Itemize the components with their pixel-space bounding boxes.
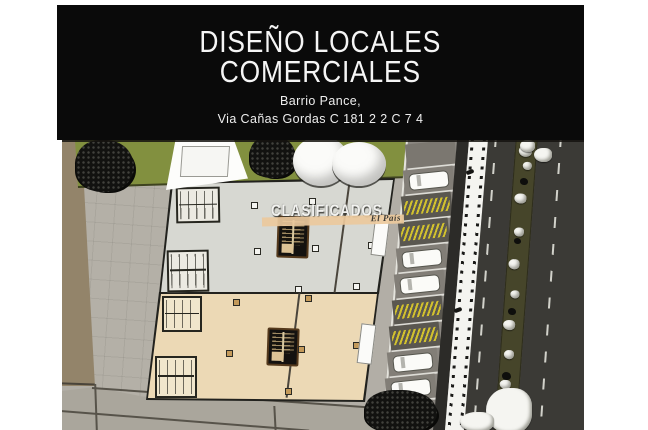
pebble (514, 238, 521, 244)
header-subtitle-line2: Via Cañas Gordas C 181 2 2 C 7 4 (57, 112, 584, 126)
rock (504, 350, 515, 360)
column-dot (312, 245, 319, 252)
rock (503, 320, 516, 331)
pebble (508, 308, 516, 315)
rock (514, 227, 525, 237)
column-dot (233, 299, 240, 306)
stair-core (266, 327, 299, 366)
restroom-block (176, 187, 221, 224)
column-dot (251, 202, 258, 209)
column-dot (305, 295, 312, 302)
page-title-line2-text: COMERCIALES (220, 57, 421, 87)
restroom-block (167, 250, 210, 293)
pebble (502, 372, 511, 380)
flyer-header: DISEÑO LOCALES COMERCIALES Barrio Pance,… (57, 5, 584, 140)
site-plan: CLASIFICADOS El País (62, 140, 584, 430)
boulder (460, 412, 494, 430)
column-dot (254, 248, 261, 255)
car (399, 274, 441, 295)
rock (534, 148, 552, 162)
car-windshield (400, 357, 405, 368)
flyer: DISEÑO LOCALES COMERCIALES Barrio Pance,… (0, 0, 648, 430)
car-windshield (407, 279, 412, 290)
page-title-line2: COMERCIALES (57, 57, 584, 87)
restroom-block (162, 296, 202, 332)
stair-landing (281, 244, 293, 253)
car (401, 248, 443, 269)
column-dot (226, 350, 233, 357)
pebble (520, 178, 528, 185)
column-dot (353, 283, 360, 290)
column-dot (285, 388, 292, 395)
watermark-source: El País (371, 213, 401, 224)
page-title-line1-text: DISEÑO LOCALES (200, 27, 442, 57)
car-windshield (416, 175, 421, 186)
tree-canopy-black (76, 140, 134, 192)
header-subtitle-line1: Barrio Pance, (57, 94, 584, 108)
shrub-white (332, 142, 386, 186)
car (392, 352, 434, 373)
tent-roof-inner (180, 146, 230, 177)
plan-top-shadow (62, 140, 584, 142)
stair-landing (272, 352, 284, 361)
rock (522, 162, 532, 171)
car-windshield (409, 253, 414, 264)
rock (510, 290, 520, 299)
column-dot (298, 346, 305, 353)
tree-canopy-black (250, 140, 296, 178)
rock (508, 259, 520, 270)
column-dot (295, 286, 302, 293)
car (408, 170, 450, 191)
page-title-line1: DISEÑO LOCALES (57, 27, 584, 57)
rock (514, 193, 527, 204)
tree-canopy-black (365, 390, 437, 430)
restroom-block (155, 356, 197, 398)
